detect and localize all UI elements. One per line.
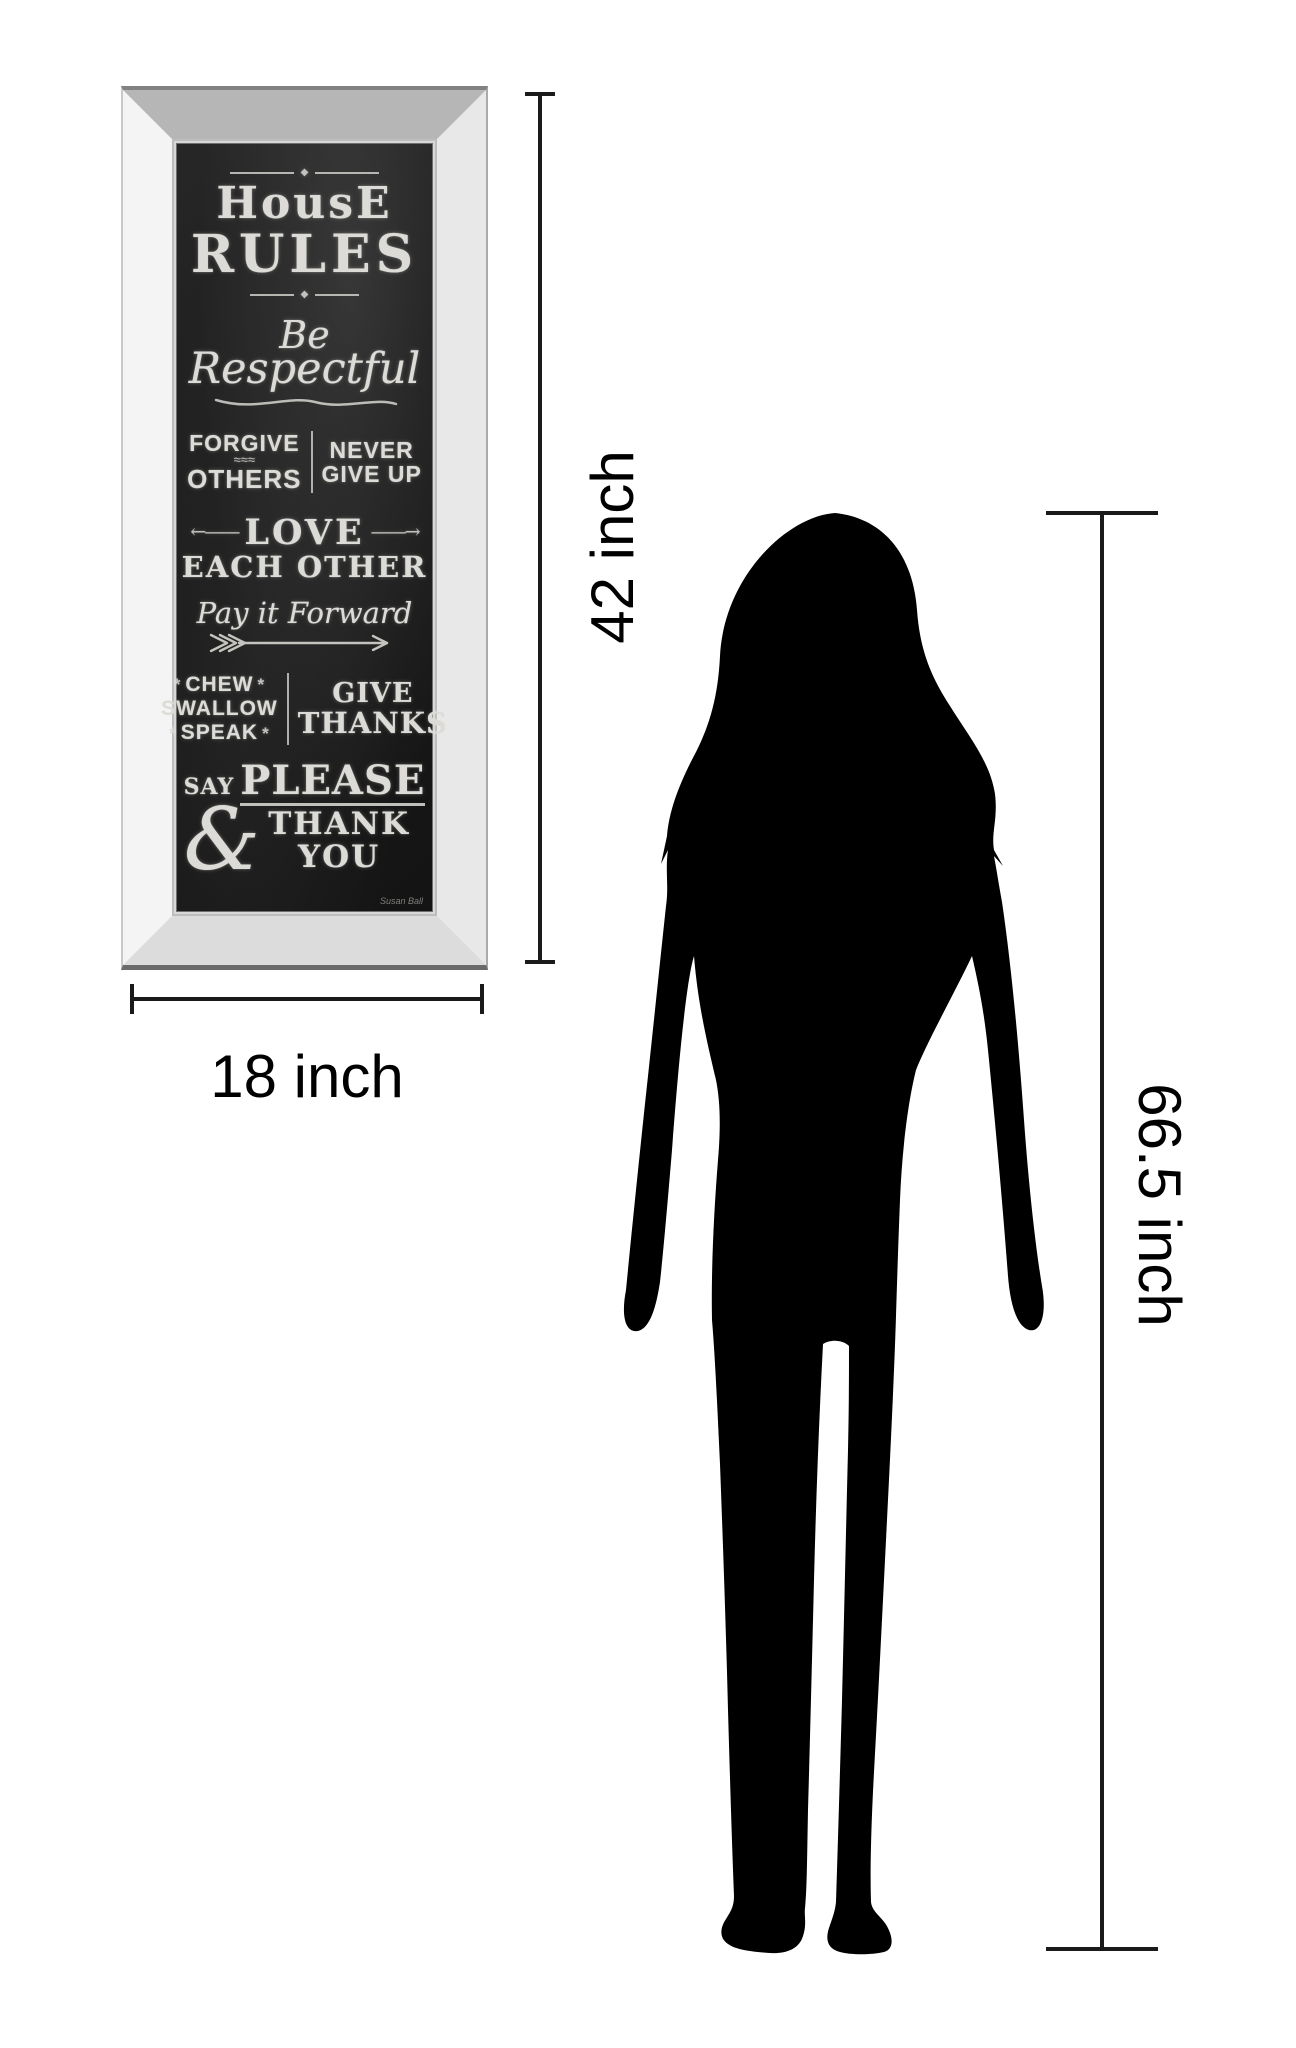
sparkle-icon: *	[169, 725, 177, 742]
sparkle-icon: *	[258, 676, 266, 693]
rule-pay-it-forward: Pay it Forward	[197, 599, 413, 628]
column-divider	[311, 431, 313, 493]
left-arrow-icon: ←——	[190, 523, 238, 542]
art-width-dimension-line	[130, 997, 484, 1001]
rule-forgive-never: FORGIVE ≈≈≈ OTHERS NEVER GIVE UP	[187, 431, 422, 493]
mirrored-picture-frame: ◆ HousE RULES ◆ Be Respectful FORGIVE ≈≈…	[121, 86, 488, 970]
sparkle-icon: *	[174, 676, 182, 693]
give-text: GIVE	[332, 680, 413, 708]
squiggle-ornament: ≈≈≈	[234, 455, 255, 465]
love-text: LOVE	[244, 515, 364, 550]
speak-text: SPEAK	[181, 721, 258, 745]
thank-text: THANK	[268, 808, 410, 841]
you-text: YOU	[298, 841, 380, 874]
diamond-ornament-icon: ◆	[301, 168, 309, 178]
rule-chew-thanks: * CHEW * SWALLOW * SPEAK * GIVE THANKS	[161, 673, 448, 745]
chew-text: CHEW	[185, 673, 253, 697]
please-text: PLEASE	[240, 761, 425, 806]
rule-please-thank-you: SAY PLEASE & THANK YOU	[184, 761, 426, 877]
each-other-text: EACH OTHER	[182, 553, 428, 582]
frame-bevel: ◆ HousE RULES ◆ Be Respectful FORGIVE ≈≈…	[123, 90, 486, 965]
sparkle-icon: *	[262, 725, 270, 742]
flourish-underline-icon	[210, 393, 400, 411]
title-line2: RULES	[191, 229, 418, 281]
right-arrow-icon: ——→	[371, 523, 419, 542]
rule-love: ←—— LOVE ——→	[190, 515, 418, 550]
title-line1: HousE	[216, 182, 392, 226]
others-text: OTHERS	[187, 466, 301, 493]
diamond-ornament-icon: ◆	[301, 290, 309, 300]
thanks-text: THANKS	[298, 708, 448, 738]
woman-silhouette	[598, 510, 1058, 1955]
column-divider	[287, 673, 289, 745]
artist-signature: Susan Ball	[380, 896, 423, 906]
product-dimension-diagram: { "artwork": { "board_color": "#1d1d1d",…	[0, 0, 1296, 2048]
art-width-label: 18 inch	[130, 1036, 484, 1116]
chalkboard-art: ◆ HousE RULES ◆ Be Respectful FORGIVE ≈≈…	[177, 144, 432, 911]
ampersand-text: &	[184, 804, 261, 877]
feathered-arrow-icon	[205, 631, 405, 655]
mid-ornament: ◆	[250, 290, 360, 300]
rule-respectful: Respectful	[189, 348, 421, 391]
top-ornament: ◆	[230, 168, 380, 178]
never-text: NEVER	[330, 438, 414, 462]
swallow-text: SWALLOW	[161, 697, 278, 721]
give-up-text: GIVE UP	[322, 462, 422, 486]
